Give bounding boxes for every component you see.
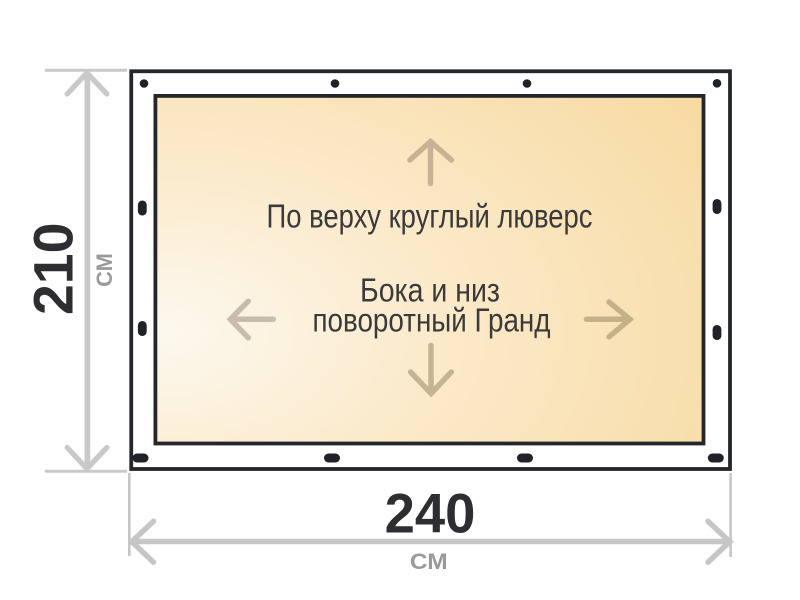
svg-text:240: 240	[385, 483, 476, 545]
svg-text:По верху круглый люверс: По верху круглый люверс	[267, 198, 593, 235]
svg-text:СМ: СМ	[92, 253, 117, 287]
svg-text:210: 210	[22, 223, 84, 316]
svg-text:поворотный Гранд: поворотный Гранд	[313, 302, 551, 339]
svg-text:СМ: СМ	[410, 549, 448, 574]
